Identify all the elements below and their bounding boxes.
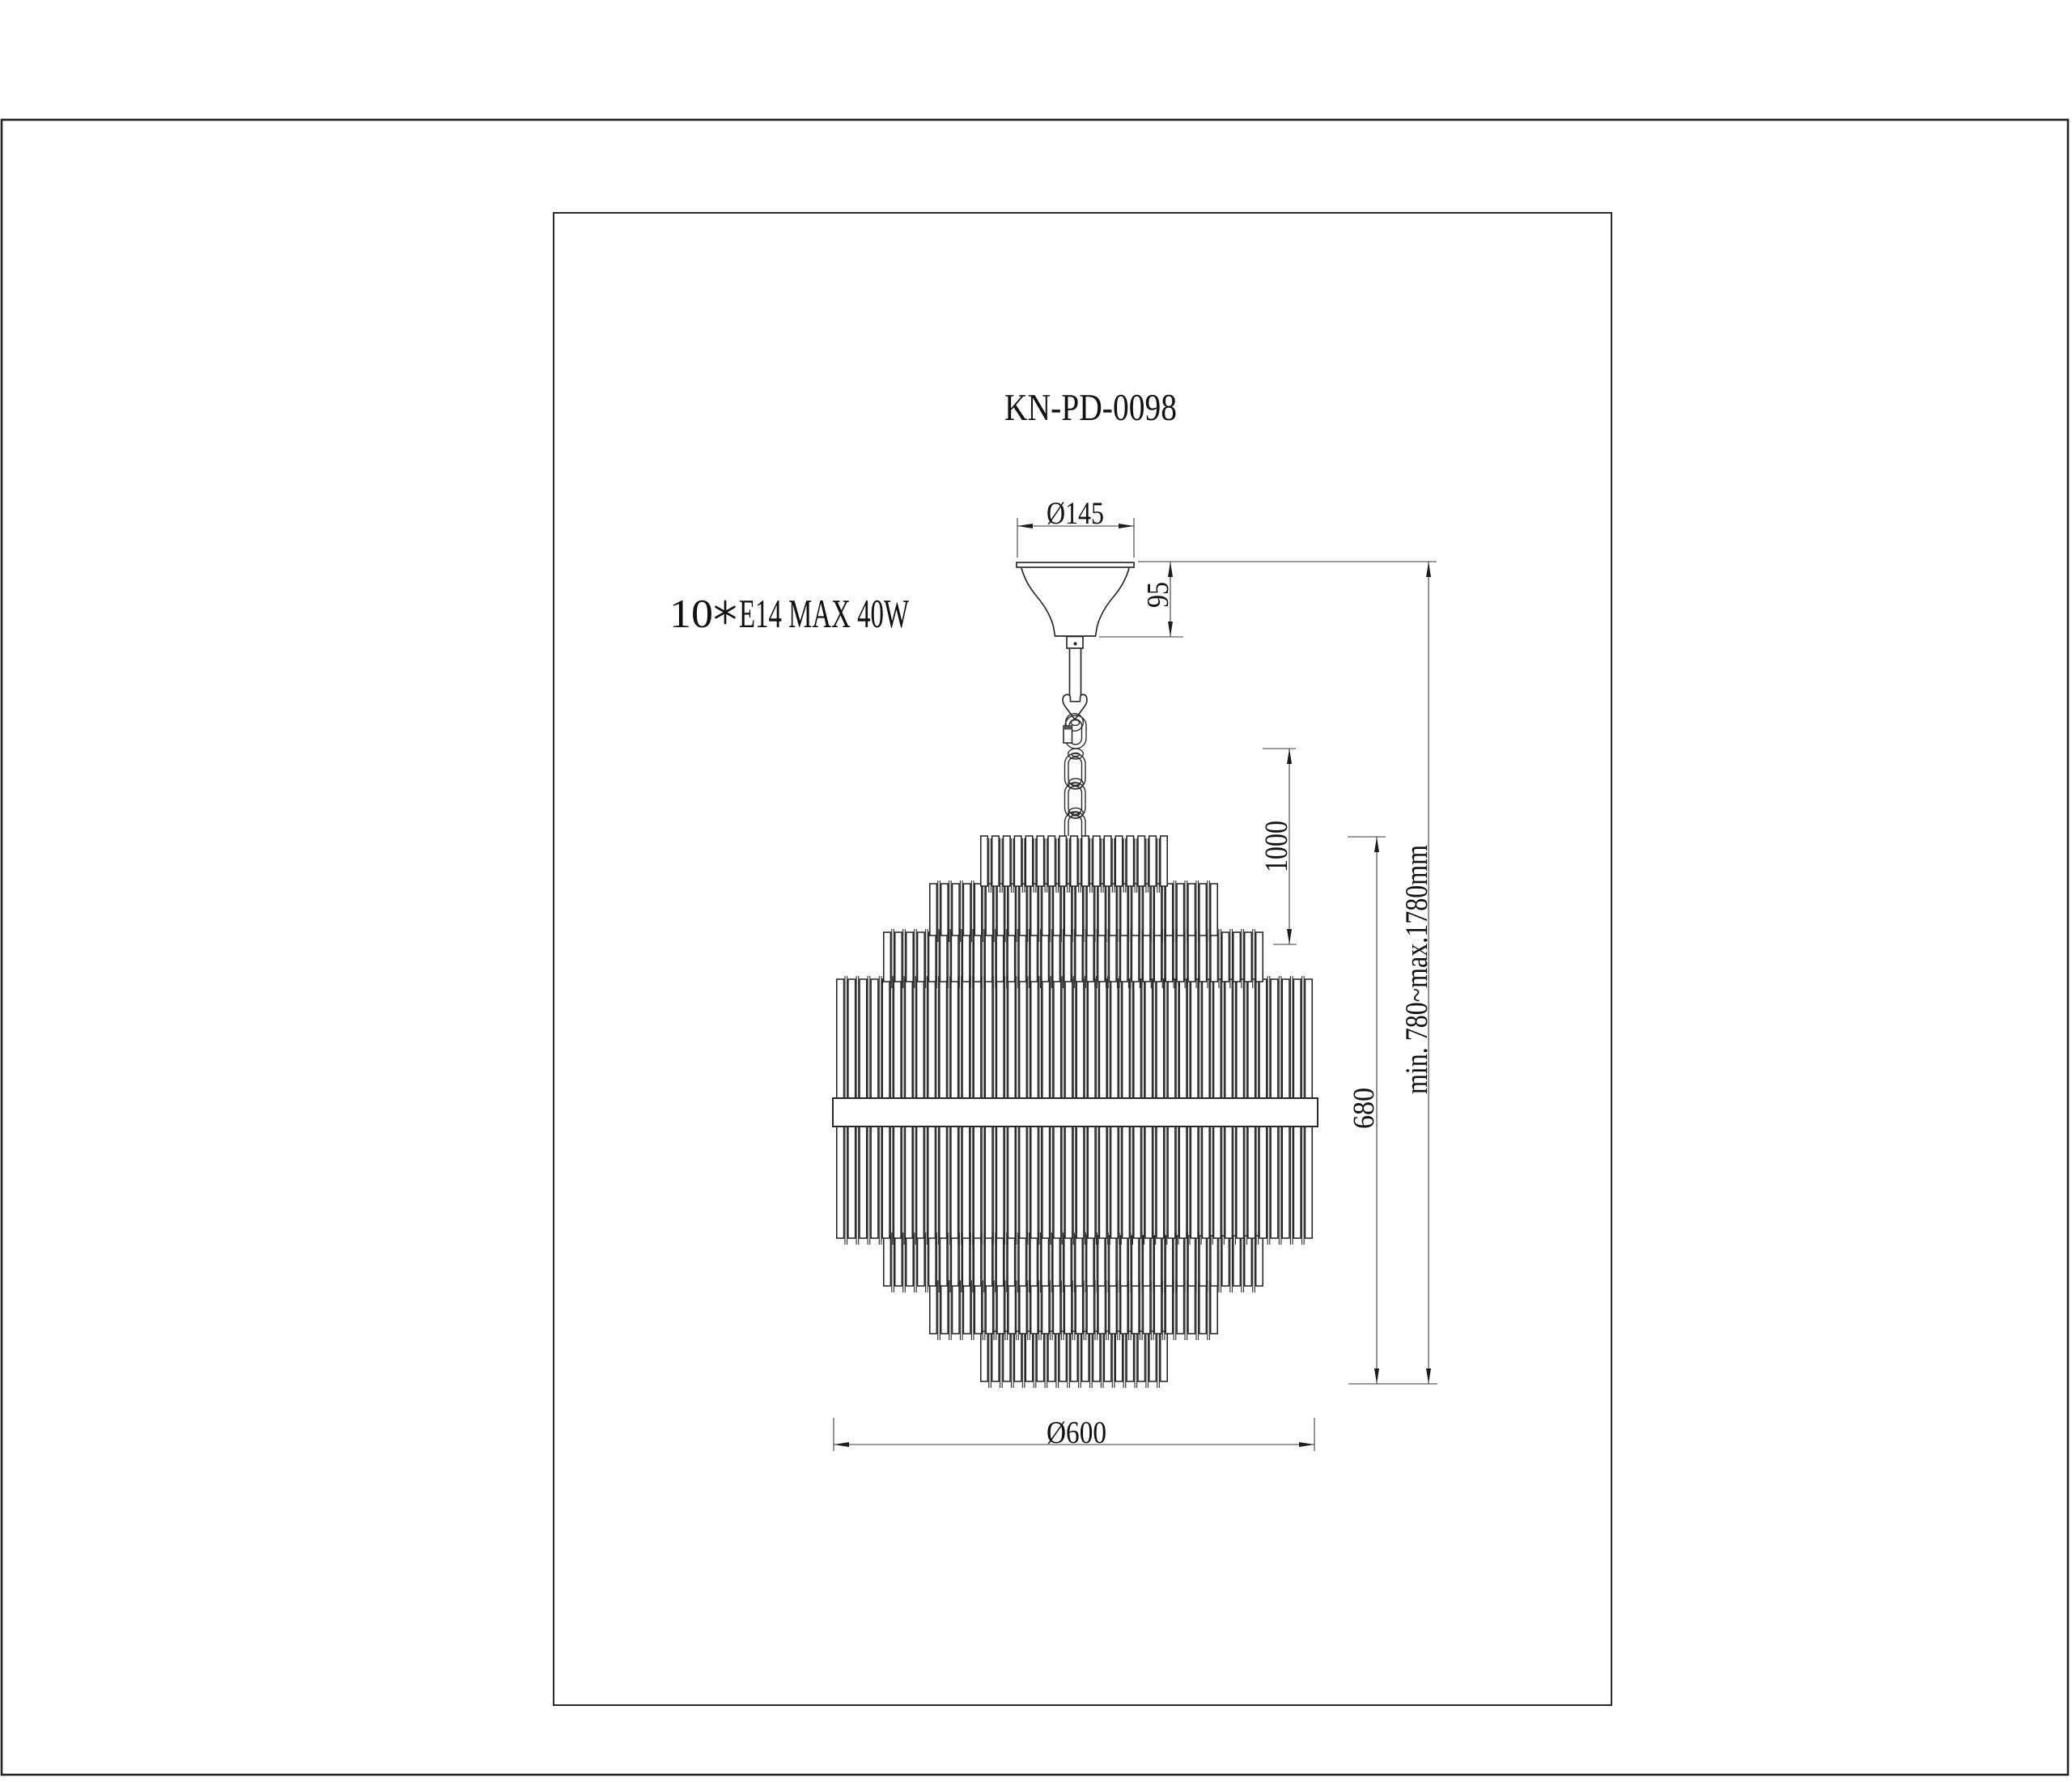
svg-text:min. 780~max.1780mm: min. 780~max.1780mm — [1399, 845, 1434, 1094]
svg-text:10: 10 — [669, 591, 713, 636]
svg-text:Ø600: Ø600 — [1047, 1415, 1106, 1450]
svg-text:E14 MAX 40W: E14 MAX 40W — [739, 591, 910, 636]
svg-text:680: 680 — [1348, 1088, 1381, 1129]
svg-text:KN-PD-0098: KN-PD-0098 — [1004, 387, 1177, 429]
svg-text:95: 95 — [1141, 582, 1175, 608]
svg-text:1000: 1000 — [1258, 821, 1294, 872]
